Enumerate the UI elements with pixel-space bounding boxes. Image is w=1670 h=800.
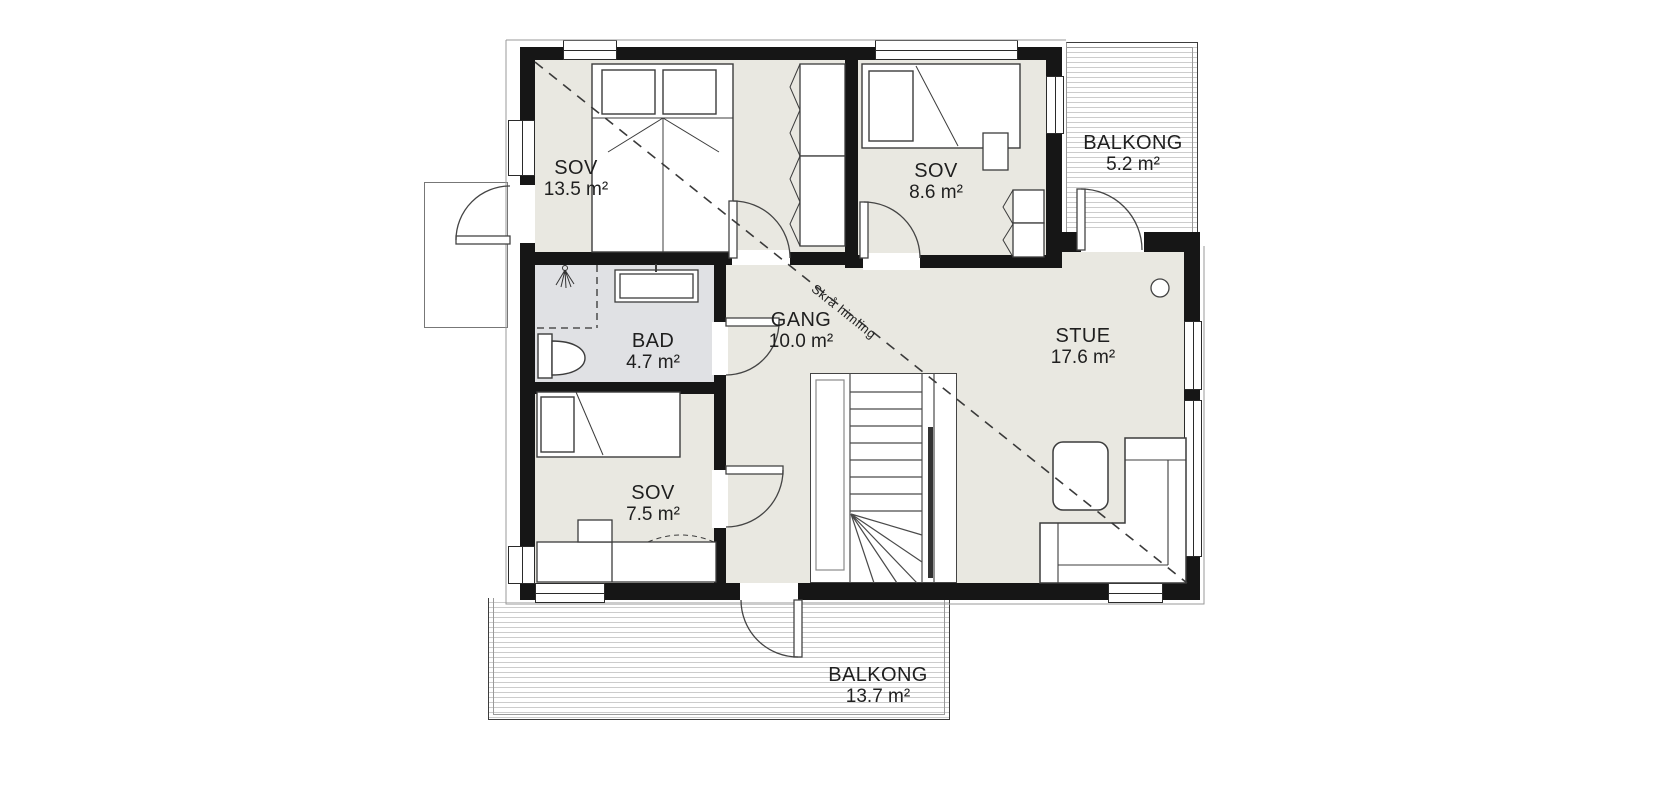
- room-name: SOV: [544, 158, 608, 179]
- balcony-top-door-leaf: [1077, 189, 1085, 250]
- entry-door-arc: [456, 186, 510, 240]
- bedroom2-door-arc: [864, 202, 920, 258]
- desk-bedroom3: [537, 520, 716, 582]
- wardrobe-bedroom1: [790, 64, 845, 246]
- balcony-top-door-arc: [1081, 189, 1142, 250]
- label-room-bad: BAD 4.7 m²: [626, 331, 680, 373]
- room-name: SOV: [626, 483, 680, 504]
- bedroom3-door-leaf: [726, 466, 783, 474]
- room-area: 13.5 m²: [544, 179, 608, 200]
- label-balcony-top: BALKONG 5.2 m²: [1083, 133, 1183, 175]
- balcony-bottom-door-arc: [741, 600, 798, 657]
- label-room-sov3: SOV 7.5 m²: [626, 483, 680, 525]
- entry-door-leaf: [456, 236, 510, 244]
- shower: [537, 265, 597, 328]
- label-room-sov2: SOV 8.6 m²: [909, 161, 963, 203]
- toilet: [538, 334, 585, 378]
- room-area: 8.6 m²: [909, 182, 963, 203]
- coffee-table: [1053, 442, 1108, 510]
- label-balcony-bottom: BALKONG 13.7 m²: [828, 665, 928, 707]
- room-area: 5.2 m²: [1083, 154, 1183, 175]
- bed-bedroom3: [537, 392, 680, 457]
- label-room-sov1: SOV 13.5 m²: [544, 158, 608, 200]
- ceiling-point: [1151, 279, 1169, 297]
- bedroom2-door-leaf: [860, 202, 868, 258]
- room-area: 13.7 m²: [828, 686, 928, 707]
- label-room-stue: STUE 17.6 m²: [1051, 326, 1115, 368]
- nightstand-bedroom2: [983, 133, 1008, 170]
- wardrobe-bedroom2: [1003, 190, 1044, 257]
- bedroom1-door-leaf: [729, 201, 737, 258]
- room-area: 7.5 m²: [626, 504, 680, 525]
- floor-plan-canvas: SOV 13.5 m² SOV 8.6 m² BALKONG 5.2 m² BA…: [0, 0, 1670, 800]
- room-name: BAD: [626, 331, 680, 352]
- double-bed: [592, 64, 733, 252]
- stairs-treads: [816, 373, 934, 583]
- room-name: BALKONG: [1083, 133, 1183, 154]
- room-name: STUE: [1051, 326, 1115, 347]
- room-name: GANG: [769, 310, 833, 331]
- bedroom3-door-arc: [726, 470, 783, 527]
- label-room-gang: GANG 10.0 m²: [769, 310, 833, 352]
- room-area: 10.0 m²: [769, 331, 833, 352]
- balcony-bottom-door-leaf: [794, 600, 802, 657]
- room-area: 17.6 m²: [1051, 347, 1115, 368]
- room-name: SOV: [909, 161, 963, 182]
- sink: [615, 264, 698, 302]
- stairs-handrail: [928, 427, 933, 578]
- room-area: 4.7 m²: [626, 352, 680, 373]
- bedroom1-door-arc: [733, 201, 790, 258]
- room-name: BALKONG: [828, 665, 928, 686]
